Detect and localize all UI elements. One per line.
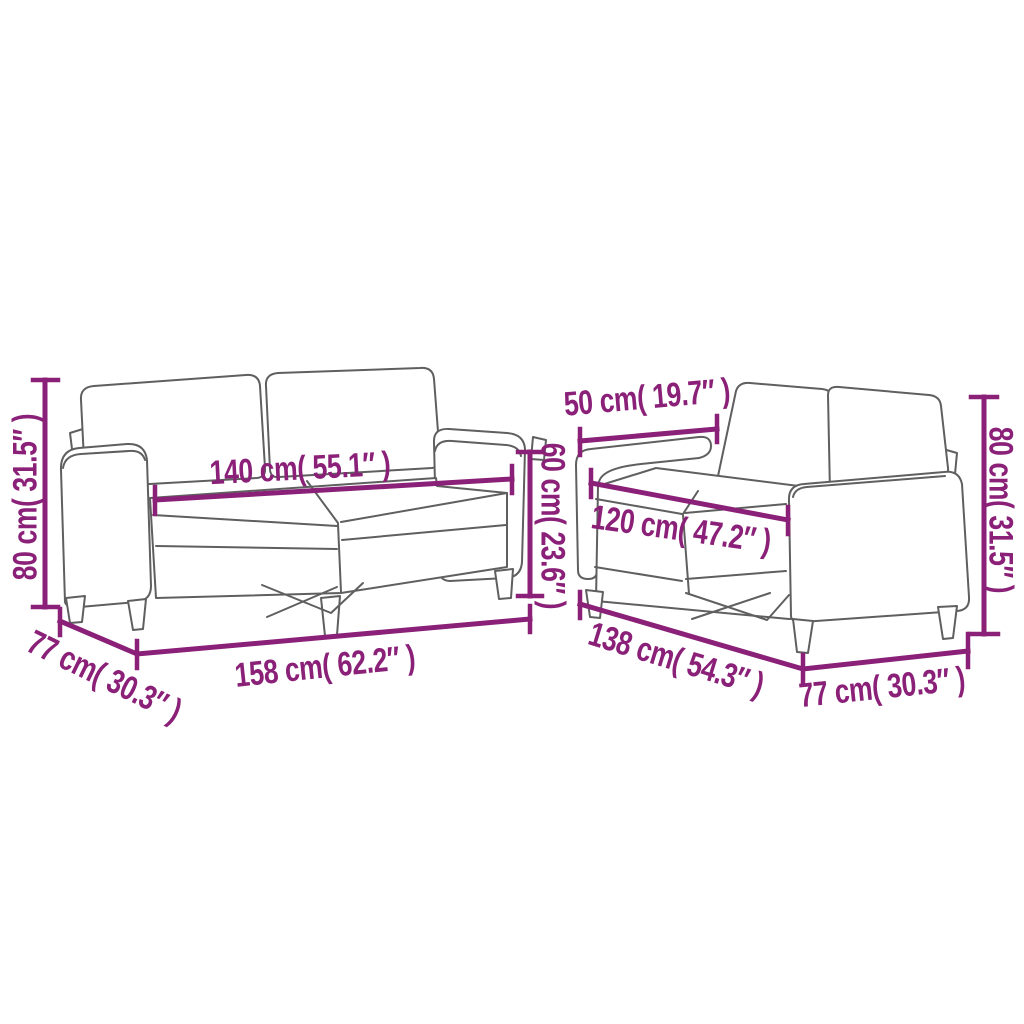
right-sofa-leg-3 [938,606,957,639]
dim-label-left-seat-height: 60 cm( 23.6″ ) [533,443,572,609]
right-sofa-right-armrest [789,472,969,622]
right-sofa-leg-2 [793,619,813,653]
dim-label-right-height: 80 cm( 31.5″ ) [981,427,1020,593]
left-sofa-left-armrest [61,444,151,607]
left-sofa-leg-3 [321,596,340,636]
left-sofa-leg-1 [66,596,85,623]
left-sofa-drawing [61,368,546,636]
dim-label-left-height: 80 cm( 31.5″ ) [7,414,46,580]
sofa-dimensions-diagram: 80 cm( 31.5″ ) 140 cm( 55.1″ ) 60 cm( 23… [0,0,1024,1024]
left-sofa-leg-2 [128,599,146,630]
left-sofa-leg-4 [495,569,513,599]
diagram-canvas [0,0,1024,1024]
